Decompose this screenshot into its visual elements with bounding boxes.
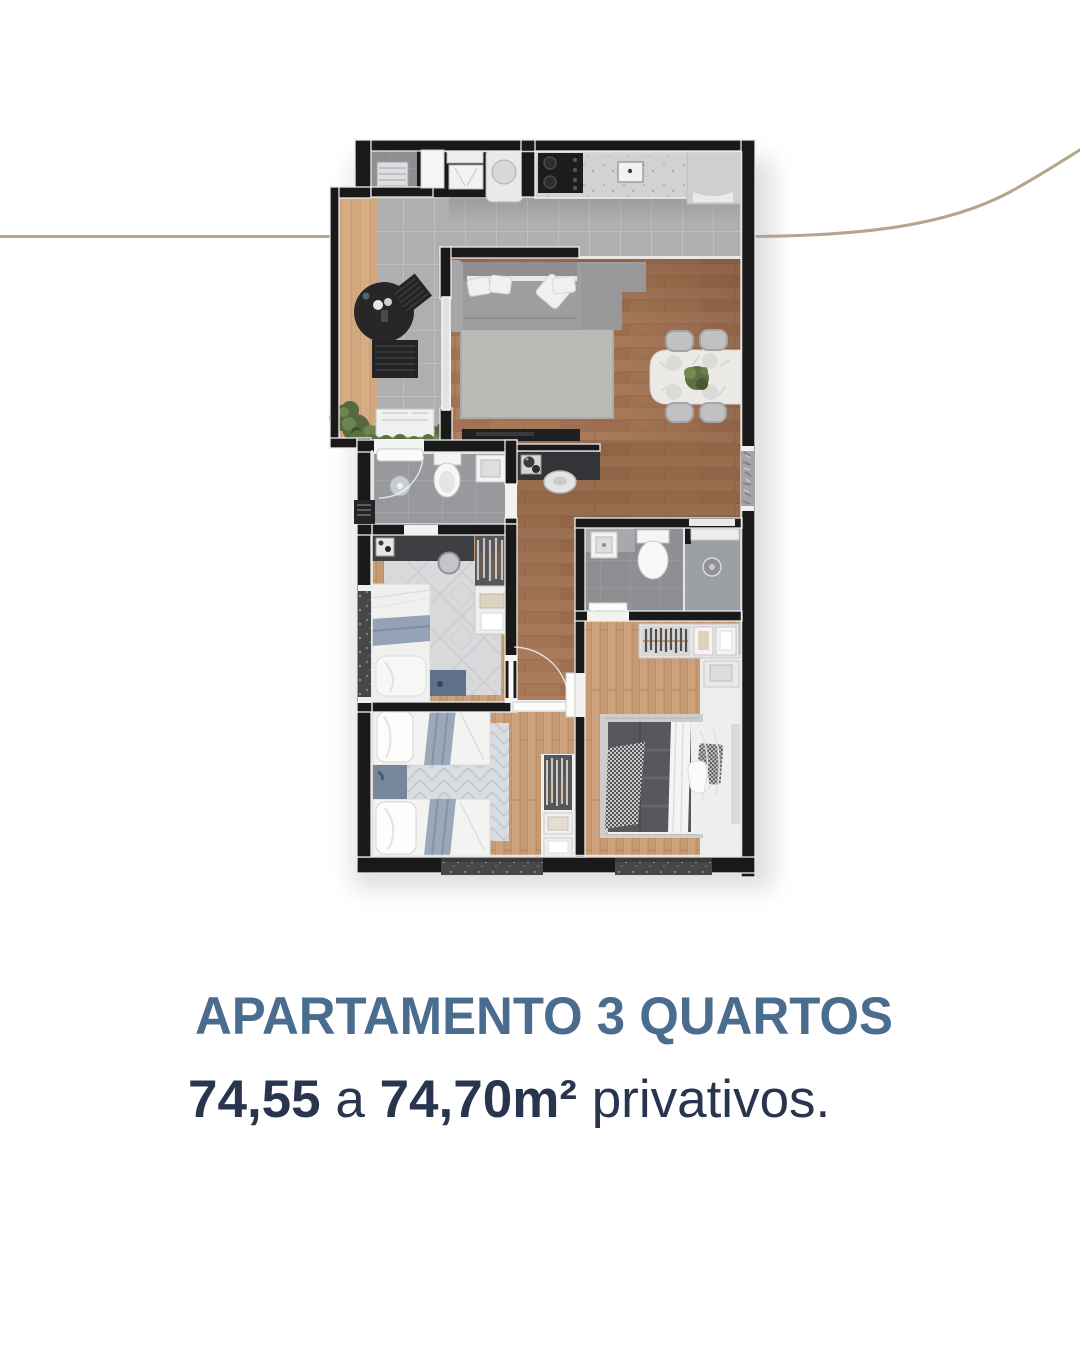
svg-text:74,55 a 74,70m² privativos.: 74,55 a 74,70m² privativos.	[188, 1070, 830, 1129]
svg-text:APARTAMENTO 3 QUARTOS: APARTAMENTO 3 QUARTOS	[195, 987, 893, 1046]
